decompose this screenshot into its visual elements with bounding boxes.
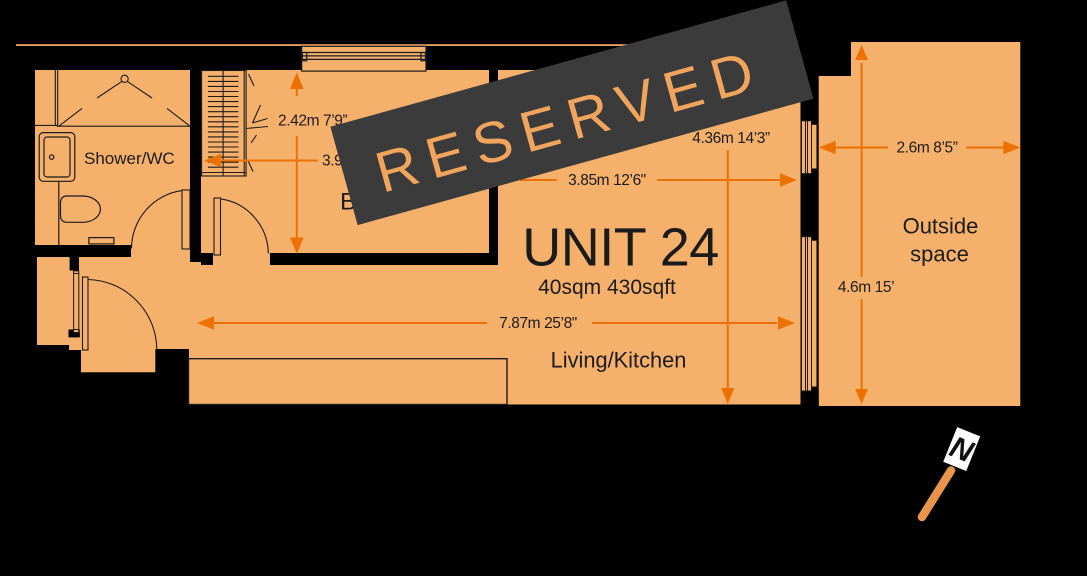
svg-text:3.85m 12’6": 3.85m 12’6": [568, 172, 646, 189]
svg-text:Living/Kitchen: Living/Kitchen: [551, 348, 687, 373]
svg-text:space: space: [910, 242, 969, 267]
svg-text:4.6m 15’: 4.6m 15’: [838, 279, 894, 296]
svg-text:UNIT 24: UNIT 24: [522, 218, 719, 278]
svg-text:Outside: Outside: [903, 214, 979, 239]
svg-text:Shower/WC: Shower/WC: [84, 149, 175, 168]
svg-text:2.6m 8’5”: 2.6m 8’5”: [896, 140, 957, 157]
svg-text:7.87m 25’8": 7.87m 25’8": [499, 315, 577, 332]
svg-text:4.36m 14’3”: 4.36m 14’3”: [692, 130, 770, 147]
svg-text:40sqm 430sqft: 40sqm 430sqft: [538, 276, 676, 299]
